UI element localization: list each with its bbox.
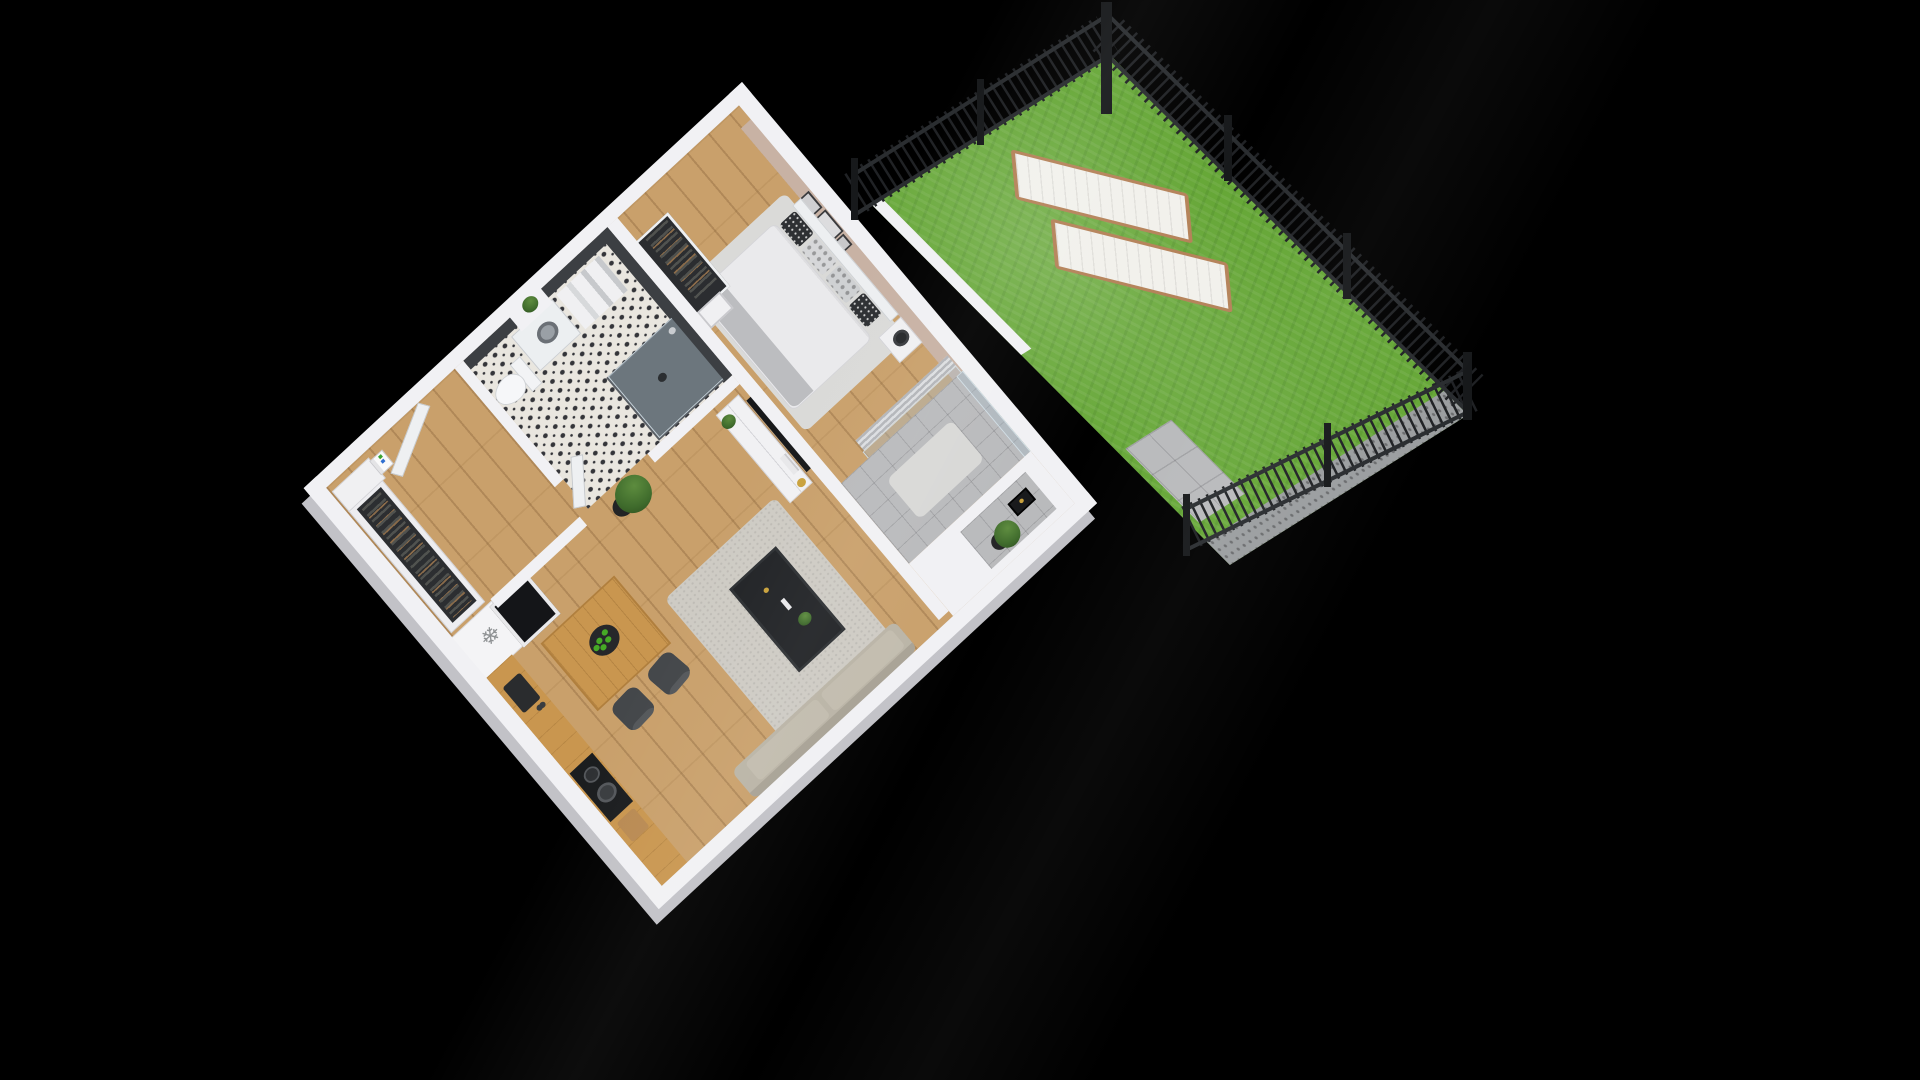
scene-canvas: ❄: [0, 0, 1920, 1080]
garden-fence: [0, 0, 1920, 1080]
fence-rails: [856, 15, 1468, 550]
